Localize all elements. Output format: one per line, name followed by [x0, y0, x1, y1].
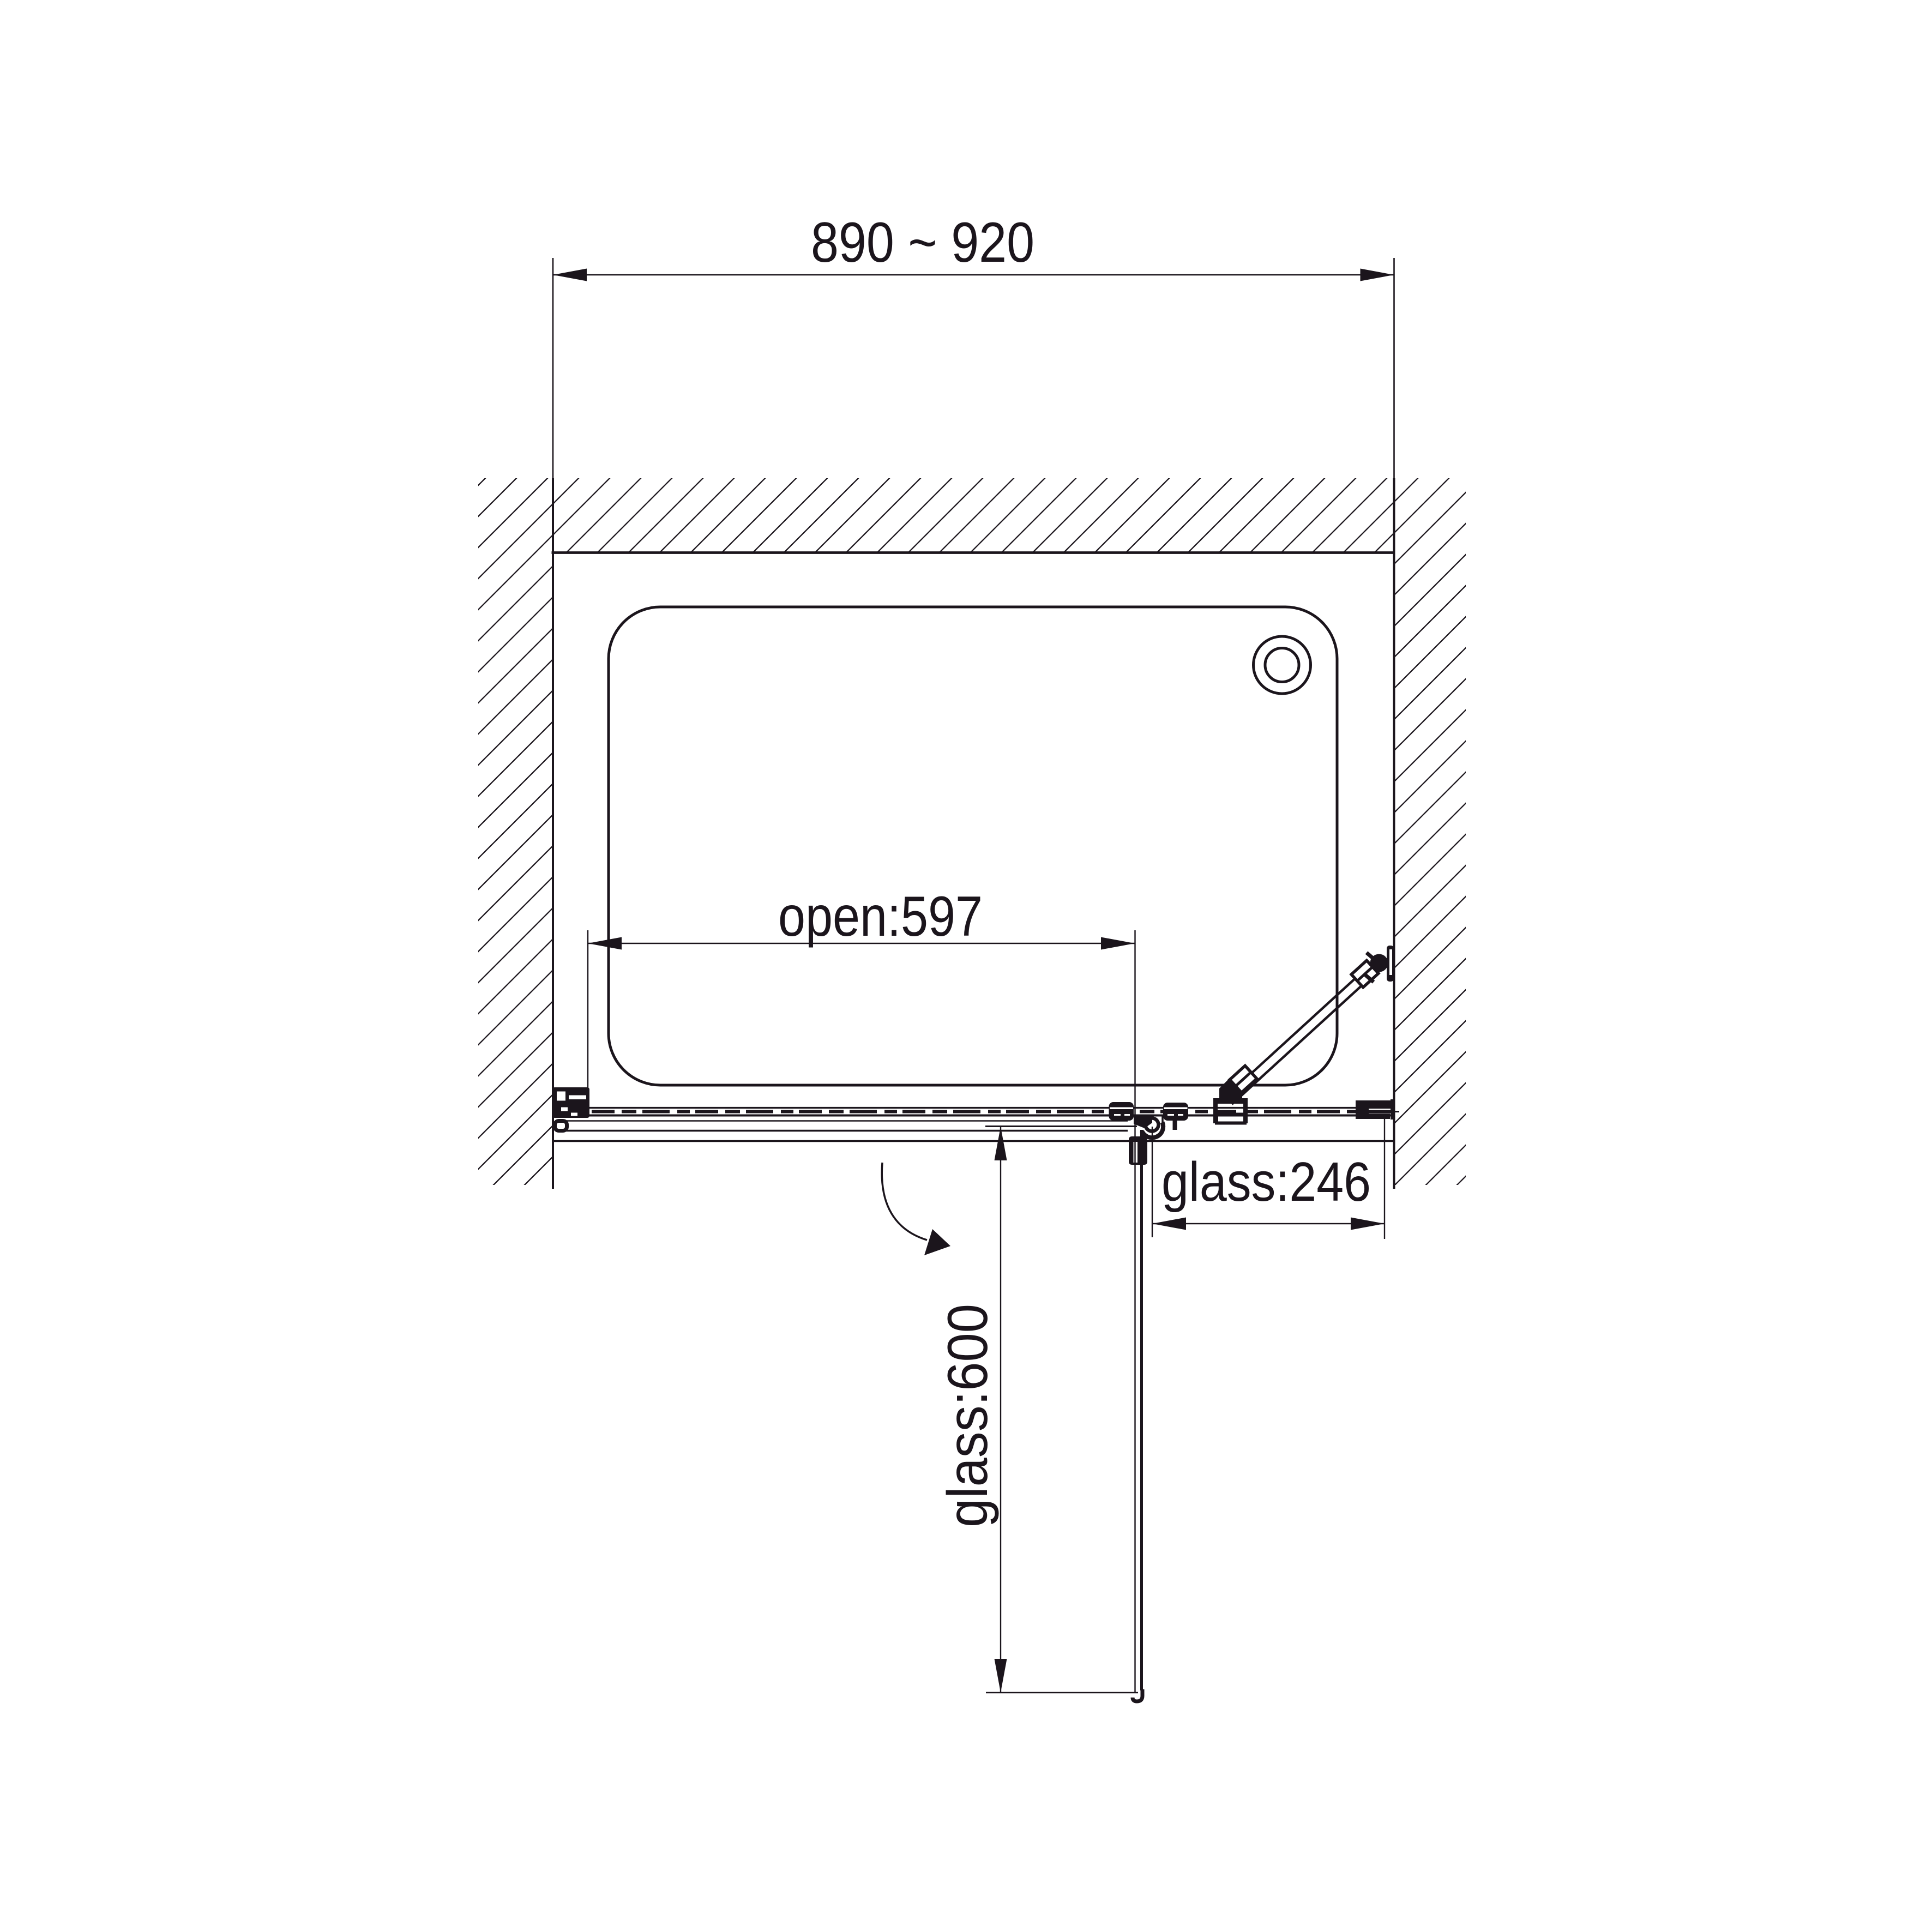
svg-text:open:597: open:597: [778, 885, 983, 948]
svg-text:glass:246: glass:246: [1161, 1152, 1371, 1213]
svg-text:glass:600: glass:600: [936, 1304, 1000, 1527]
svg-text:890 ~ 920: 890 ~ 920: [811, 211, 1034, 274]
